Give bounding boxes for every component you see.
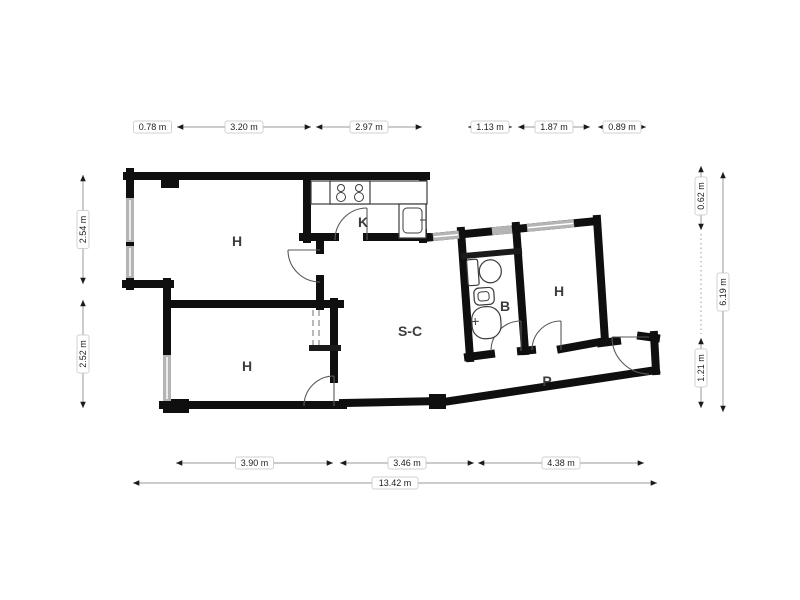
- dimensions-left: 2.54 m 2.52 m: [77, 175, 89, 408]
- closet-dashed-opening: [313, 310, 319, 345]
- bidet-icon: [473, 287, 494, 305]
- dimension-label-group: 0.62 m: [695, 177, 707, 215]
- wall-tab-bottom-left: [163, 399, 189, 413]
- dimensions-top: 0.78 m 3.20 m 2.97 m 1.13 m 1.87 m 0.89 …: [133, 121, 646, 133]
- room-label-bedroom-top-left: H: [232, 233, 242, 249]
- dimension-label: 2.97 m: [355, 122, 383, 132]
- dimension-label: 3.20 m: [230, 122, 258, 132]
- wall-segments-main: [126, 172, 656, 407]
- stove-icon: [330, 181, 370, 204]
- kitchen-fixtures: [311, 181, 427, 238]
- room-label-kitchen: K: [358, 214, 368, 230]
- dimension-label-group: 6.19 m: [717, 273, 729, 311]
- room-label-bedroom-bottom-left: H: [242, 358, 252, 374]
- dimension-label: 4.38 m: [547, 458, 575, 468]
- dimension-label: 0.89 m: [608, 122, 636, 132]
- dimension-label-total: 13.42 m: [379, 478, 412, 488]
- dimension-label: 1.21 m: [696, 354, 706, 382]
- floor-plan-canvas: H K S-C B H H P 0.78 m 3.20 m 2.97 m 1.1…: [0, 0, 800, 600]
- room-label-bathroom: B: [500, 298, 510, 314]
- dimension-label: 1.87 m: [540, 122, 568, 132]
- dimension-label: 3.90 m: [241, 458, 269, 468]
- wall-pillar: [161, 178, 179, 188]
- room-label-bedroom-right: H: [554, 283, 564, 299]
- dimension-label: 2.52 m: [78, 340, 88, 368]
- door-swing-icon: [532, 321, 561, 350]
- dimension-label-group: 2.52 m: [77, 335, 89, 373]
- windows: [130, 186, 574, 401]
- door-swing-icon: [288, 250, 320, 282]
- room-label-living-dining: S-C: [398, 323, 422, 339]
- dimension-label: 3.46 m: [393, 458, 421, 468]
- wall-tab-junction: [429, 394, 446, 409]
- dimension-label: 2.54 m: [78, 216, 88, 244]
- window-center-lines: [130, 188, 573, 399]
- dimension-label-group: 2.54 m: [77, 211, 89, 249]
- dimensions-bottom: 3.90 m 3.46 m 4.38 m 13.42 m: [133, 457, 657, 489]
- closet-lines: [313, 310, 319, 345]
- room-label-hallway: P: [542, 373, 551, 389]
- dimension-label-group: 1.21 m: [695, 349, 707, 387]
- dimension-label: 1.13 m: [476, 122, 504, 132]
- toilet-icon: [479, 259, 503, 283]
- dimension-label: 6.19 m: [718, 278, 728, 306]
- walls: [126, 172, 656, 413]
- window-icon: [130, 186, 574, 401]
- dimension-label: 0.78 m: [139, 122, 167, 132]
- dimensions-right: 0.62 m 1.21 m 6.19 m: [695, 166, 729, 412]
- dimension-label: 0.62 m: [696, 182, 706, 210]
- toilet-tank: [466, 259, 479, 286]
- floor-plan: H K S-C B H H P 0.78 m 3.20 m 2.97 m 1.1…: [0, 0, 800, 600]
